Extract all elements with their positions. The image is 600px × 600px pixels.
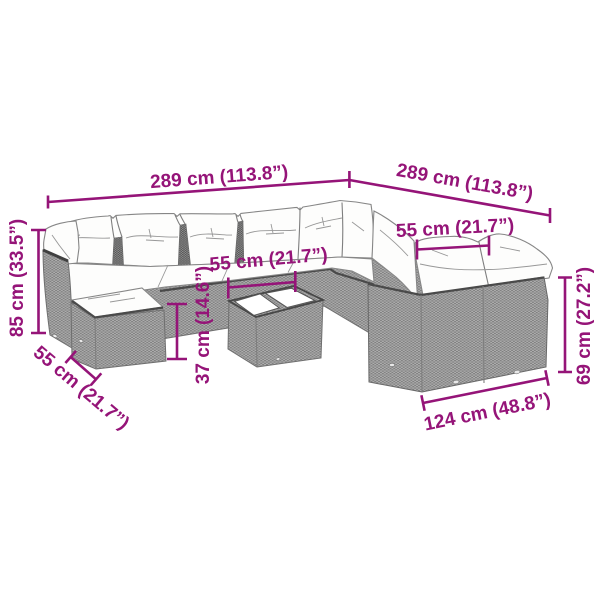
svg-text:69 cm (27.2”): 69 cm (27.2”) <box>574 267 595 385</box>
svg-text:289 cm (113.8”): 289 cm (113.8”) <box>395 160 535 205</box>
svg-text:85 cm (33.5”): 85 cm (33.5”) <box>7 219 28 337</box>
svg-text:124 cm (48.8”): 124 cm (48.8”) <box>422 389 552 435</box>
svg-text:37 cm (14.6”): 37 cm (14.6”) <box>193 266 214 384</box>
